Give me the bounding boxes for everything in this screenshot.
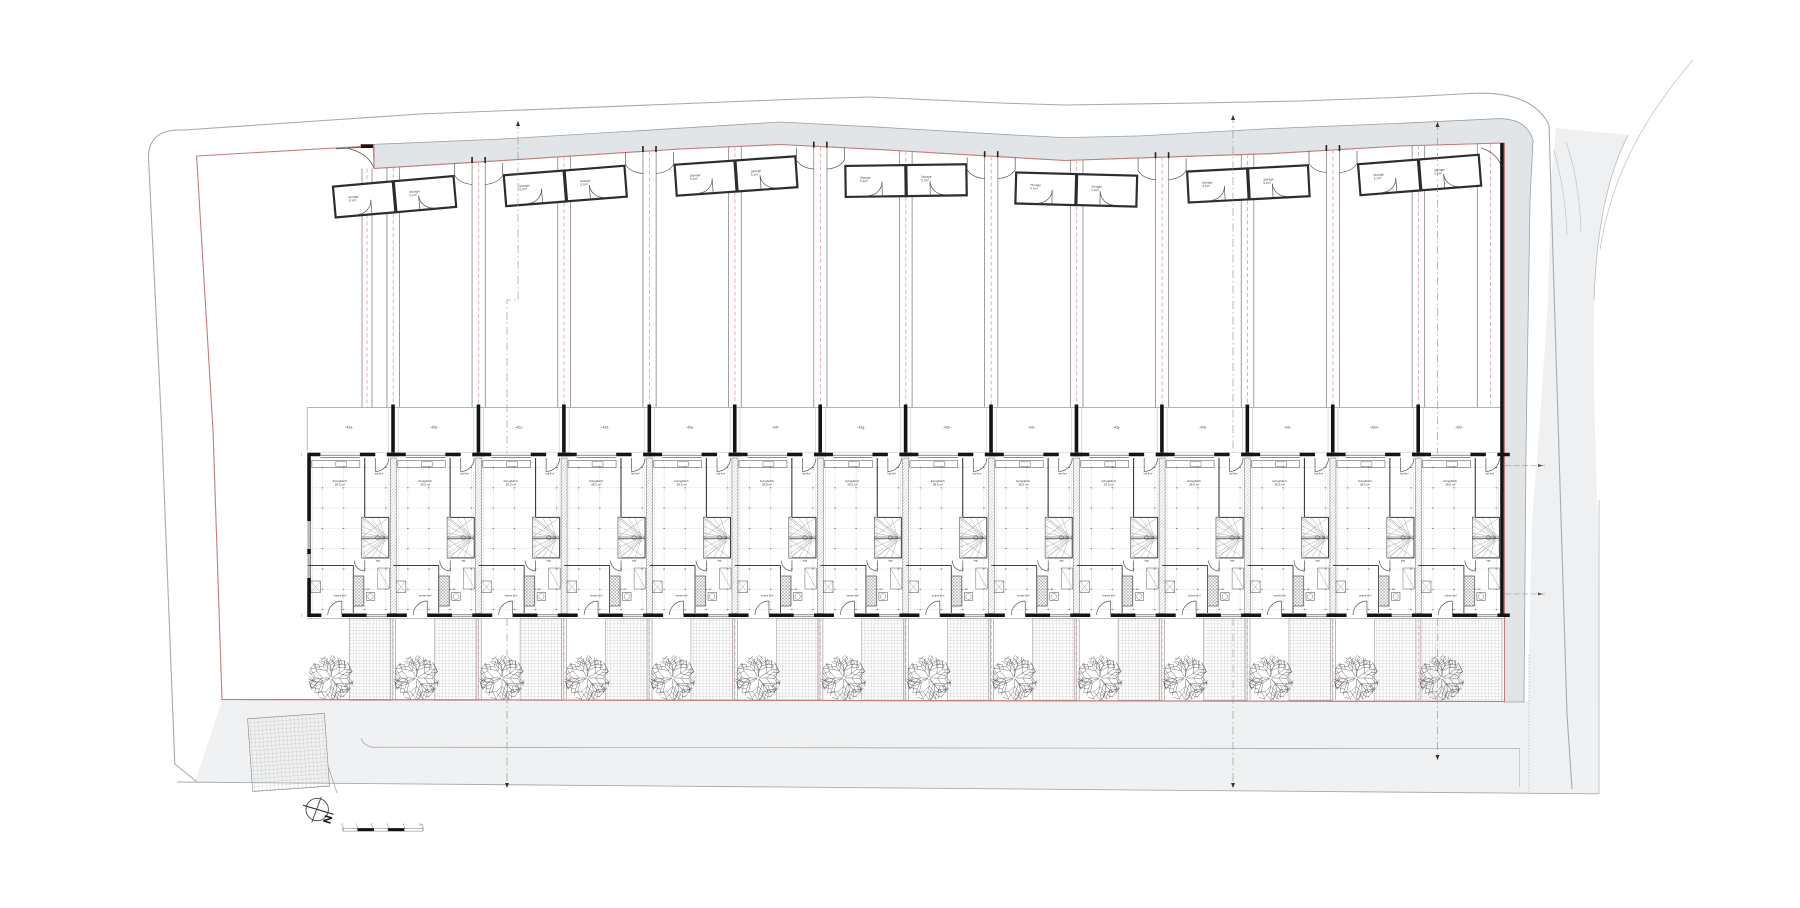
svg-text:-42l-: -42l- [1284,426,1292,430]
svg-text:-42c-: -42c- [515,426,524,430]
svg-text:-42f-: -42f- [772,426,780,430]
svg-text:-42j-: -42j- [1113,426,1121,430]
svg-text:-42a-: -42a- [345,426,354,430]
svg-text:-42d-: -42d- [601,426,610,430]
svg-text:-42m-: -42m- [1370,426,1380,430]
svg-text:-42n-: -42n- [1455,426,1464,430]
svg-text:-42i-: -42i- [1028,426,1036,430]
svg-text:-42k-: -42k- [1199,426,1208,430]
svg-text:-42g-: -42g- [857,426,866,430]
svg-text:5m: 5m [420,823,424,827]
svg-text:-42e-: -42e- [686,426,695,430]
svg-text:-42h-: -42h- [943,426,952,430]
svg-text:-42b-: -42b- [430,426,439,430]
